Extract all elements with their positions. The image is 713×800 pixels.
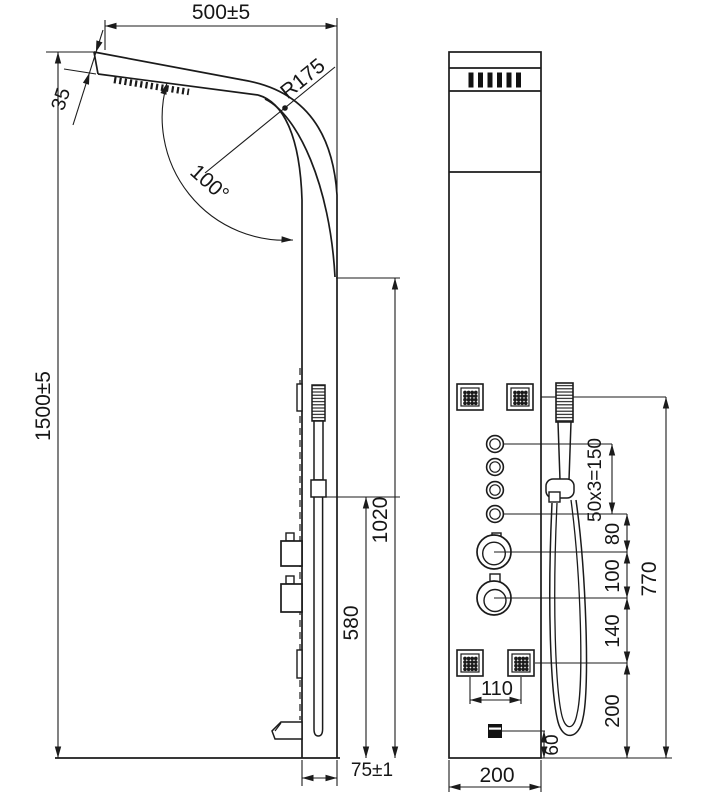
body-jet-top-left <box>457 384 483 410</box>
spout-side-profile <box>272 722 302 739</box>
lower-jet-side-profile <box>297 650 302 678</box>
dim-top-width-label: 500±5 <box>192 1 250 24</box>
spout-front <box>488 724 502 738</box>
side-view-dimensions: 500±5 35 R175 100° 1500±5 1020 580 75±1 <box>32 1 400 786</box>
handshower-head-front <box>556 383 573 422</box>
vent-slots <box>469 73 522 88</box>
arm-shoulder-curve <box>265 99 335 277</box>
dim-bend-radius-label: R175 <box>276 54 329 103</box>
dim-head-thickness-label: 35 <box>47 85 75 113</box>
radius-tangent-dot <box>282 105 288 111</box>
dim-overall-height-label: 1500±5 <box>32 371 55 441</box>
dim-panel-depth-label: 75±1 <box>351 760 393 781</box>
dim-controls-span-label: 770 <box>638 561 661 596</box>
body-jet-bottom-left <box>457 650 483 676</box>
front-view <box>449 52 587 758</box>
dim-spout-offset-label: 60 <box>542 734 563 755</box>
hose-inner <box>555 500 581 727</box>
hose-side <box>314 497 323 736</box>
control-knob-1 <box>477 533 511 569</box>
dim-button-pitch-label: 50x3=150 <box>585 438 606 522</box>
dim-handshower-height-label: 580 <box>340 605 363 640</box>
upper-jet-side-profile <box>297 384 302 411</box>
knob1-side-profile <box>281 533 302 566</box>
dim-knob-pitch-label: 100 <box>602 559 624 592</box>
handshower-bracket-side <box>311 480 326 497</box>
side-view <box>55 52 340 758</box>
arrowheads-side <box>55 23 398 781</box>
handshower-handle-side <box>314 421 323 480</box>
dim-bottom-jet-offset-label: 200 <box>602 694 624 727</box>
dim-jet-pitch-label: 110 <box>481 678 513 700</box>
diverter-buttons <box>487 436 504 523</box>
technical-drawing-canvas: 500±5 35 R175 100° 1500±5 1020 580 75±1 <box>0 0 713 800</box>
hose-nut <box>549 492 560 502</box>
knob2-side-profile <box>281 576 302 612</box>
dim-jet-offset-label: 140 <box>602 614 624 647</box>
handshower-head-side <box>312 385 325 421</box>
arm-inner-curve-panel-front-edge <box>258 95 302 758</box>
dim-panel-width-label: 200 <box>479 764 514 787</box>
shower-panel-drawing: 500±5 35 R175 100° 1500±5 1020 580 75±1 <box>0 0 713 800</box>
handshower-handle-front <box>558 422 571 480</box>
body-jet-top-right <box>507 384 533 410</box>
body-jet-bottom-right <box>508 650 534 676</box>
dim-knob-offset-label: 80 <box>602 523 624 545</box>
control-knob-2 <box>477 574 511 615</box>
dim-bend-angle-label: 100° <box>186 160 234 206</box>
dim-body-height-label: 1020 <box>369 497 392 544</box>
